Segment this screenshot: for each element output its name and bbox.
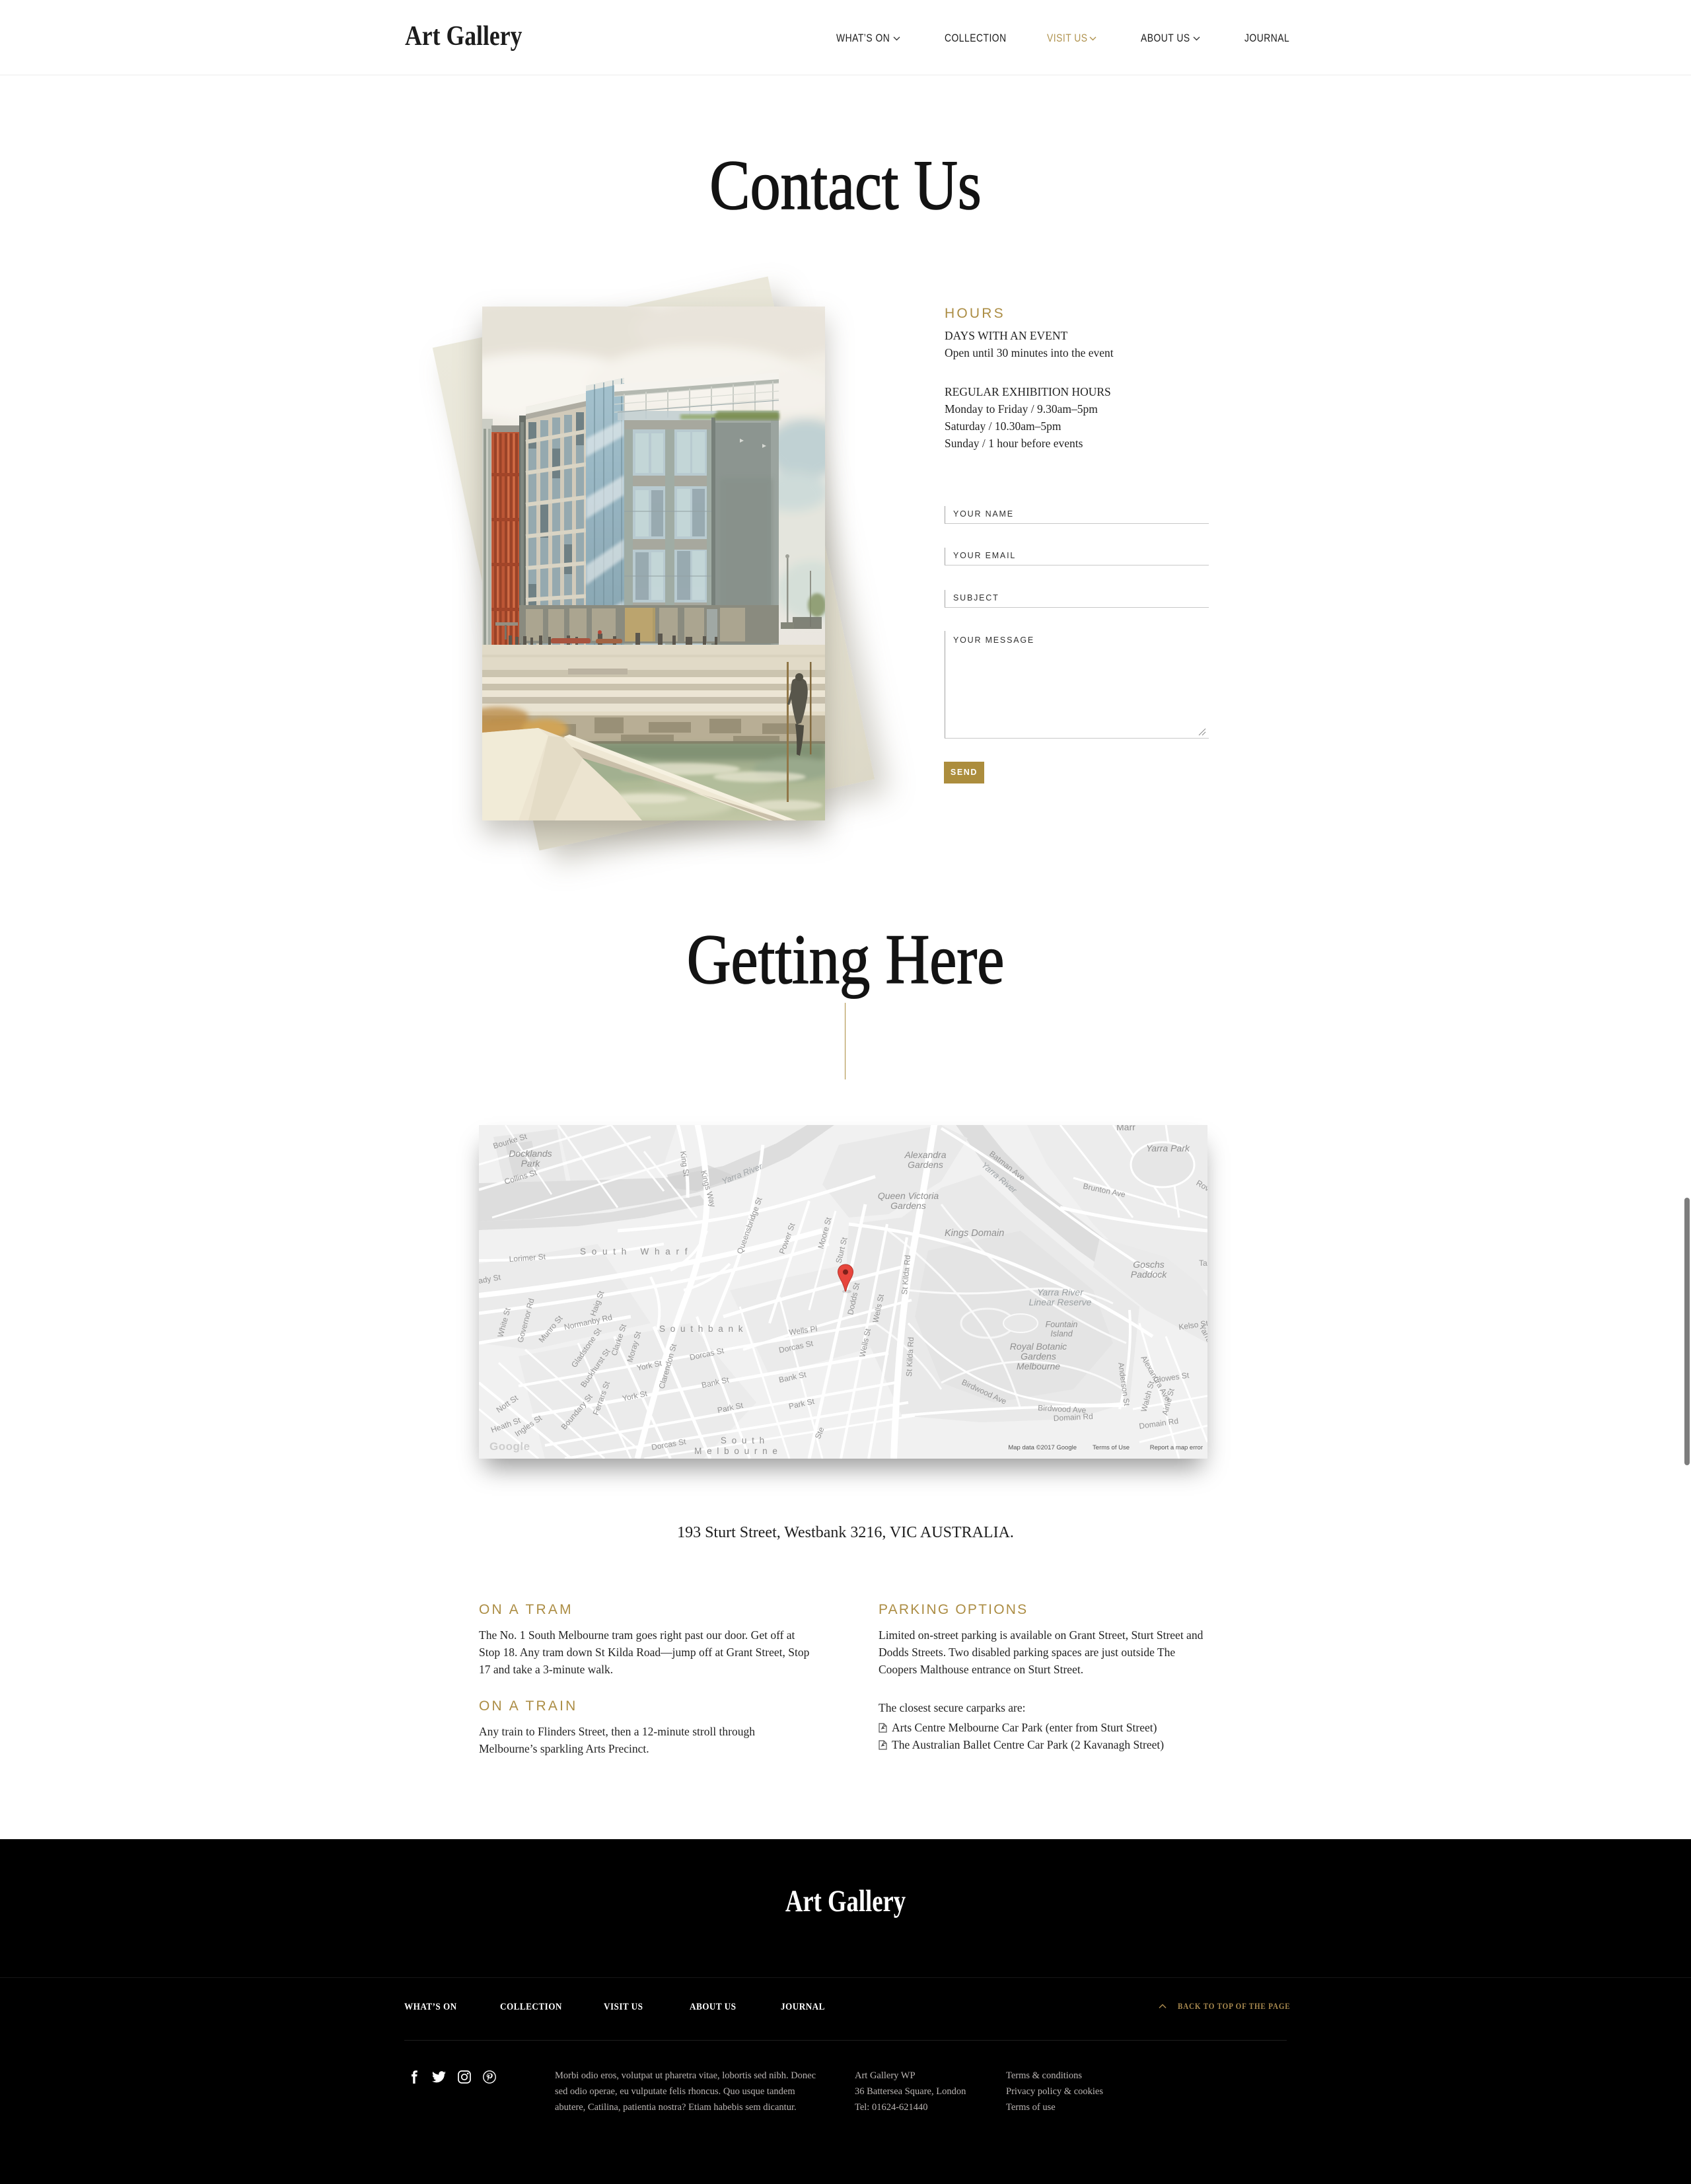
svg-text:GoschsPaddock: GoschsPaddock bbox=[1131, 1259, 1167, 1280]
svg-text:Yarra RiverLinear Reserve: Yarra RiverLinear Reserve bbox=[1029, 1287, 1092, 1307]
svg-text:Tann: Tann bbox=[1199, 1258, 1207, 1268]
svg-text:Google: Google bbox=[489, 1440, 530, 1453]
svg-text:Yarra Park: Yarra Park bbox=[1146, 1143, 1190, 1153]
svg-text:Map data ©2017 Google: Map data ©2017 Google bbox=[1008, 1444, 1077, 1451]
svg-text:S o u t h W h a r f: S o u t h W h a r f bbox=[580, 1247, 689, 1256]
svg-text:Report a map error: Report a map error bbox=[1150, 1444, 1203, 1451]
svg-text:AlexandraGardens: AlexandraGardens bbox=[904, 1149, 946, 1170]
svg-text:Terms of Use: Terms of Use bbox=[1093, 1444, 1130, 1451]
svg-text:S o u t h b a n k: S o u t h b a n k bbox=[659, 1324, 744, 1334]
svg-text:Marr: Marr bbox=[1116, 1125, 1135, 1132]
svg-text:Kings Domain: Kings Domain bbox=[945, 1228, 1004, 1239]
